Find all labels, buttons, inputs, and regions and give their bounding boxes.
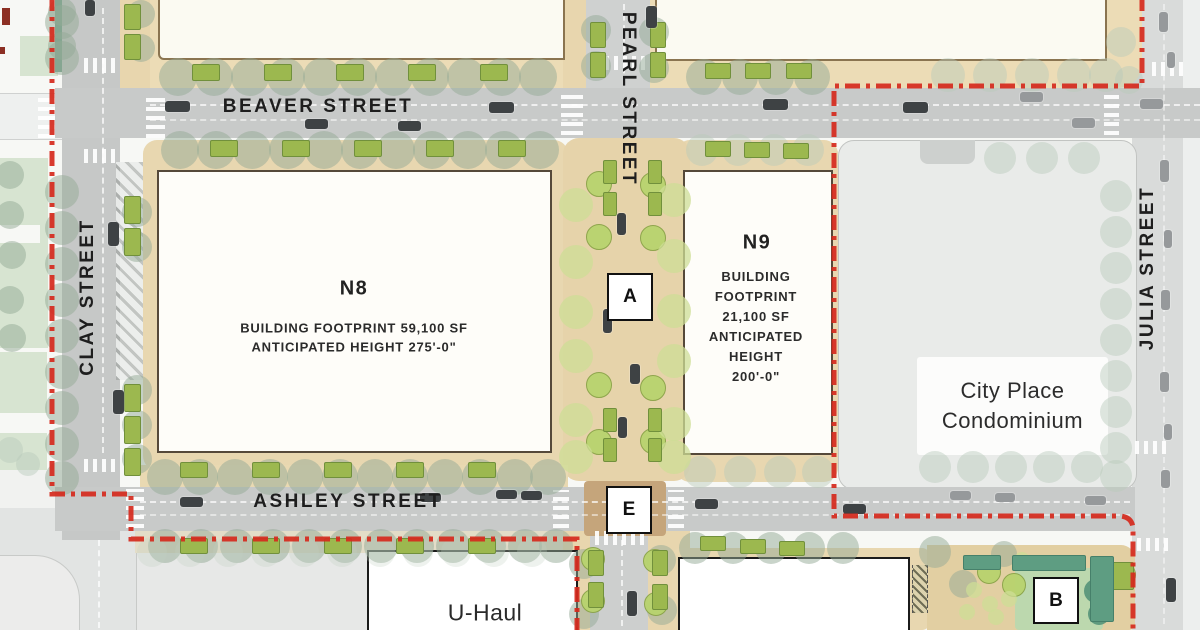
building-n9-name: N9 (743, 232, 772, 255)
city-place-label: City Place Condominium (917, 357, 1108, 455)
building-n9-line: 21,100 SF (722, 307, 789, 327)
street-label-ashley: ASHLEY STREET (253, 491, 442, 513)
u-haul-label: U-Haul (448, 600, 523, 627)
project-boundary-line (0, 0, 1200, 630)
marker-b: B (1033, 577, 1079, 624)
building-n9-line: HEIGHT (729, 347, 783, 367)
building-n9-line: BUILDING (721, 267, 790, 287)
street-label-beaver: BEAVER STREET (223, 96, 414, 118)
street-label-pearl: PEARL STREET (617, 12, 639, 186)
street-label-julia: JULIA STREET (1137, 186, 1159, 350)
building-n8-height: ANTICIPATED HEIGHT 275'-0" (251, 340, 456, 355)
site-plan-map: BEAVER STREET ASHLEY STREET CLAY STREET … (0, 0, 1200, 630)
street-label-clay: CLAY STREET (77, 218, 99, 375)
building-n9-details: BUILDING FOOTPRINT 21,100 SF ANTICIPATED… (683, 267, 829, 387)
building-n9-line: FOOTPRINT (715, 287, 797, 307)
building-n8-name: N8 (340, 278, 369, 301)
city-place-line2: Condominium (942, 406, 1083, 436)
building-n8-footprint: BUILDING FOOTPRINT 59,100 SF (240, 321, 468, 336)
marker-a: A (607, 273, 653, 321)
building-n9-line: ANTICIPATED (709, 327, 803, 347)
building-n9-line: 200'-0" (732, 367, 780, 387)
marker-e: E (606, 486, 652, 534)
city-place-line1: City Place (960, 376, 1064, 406)
